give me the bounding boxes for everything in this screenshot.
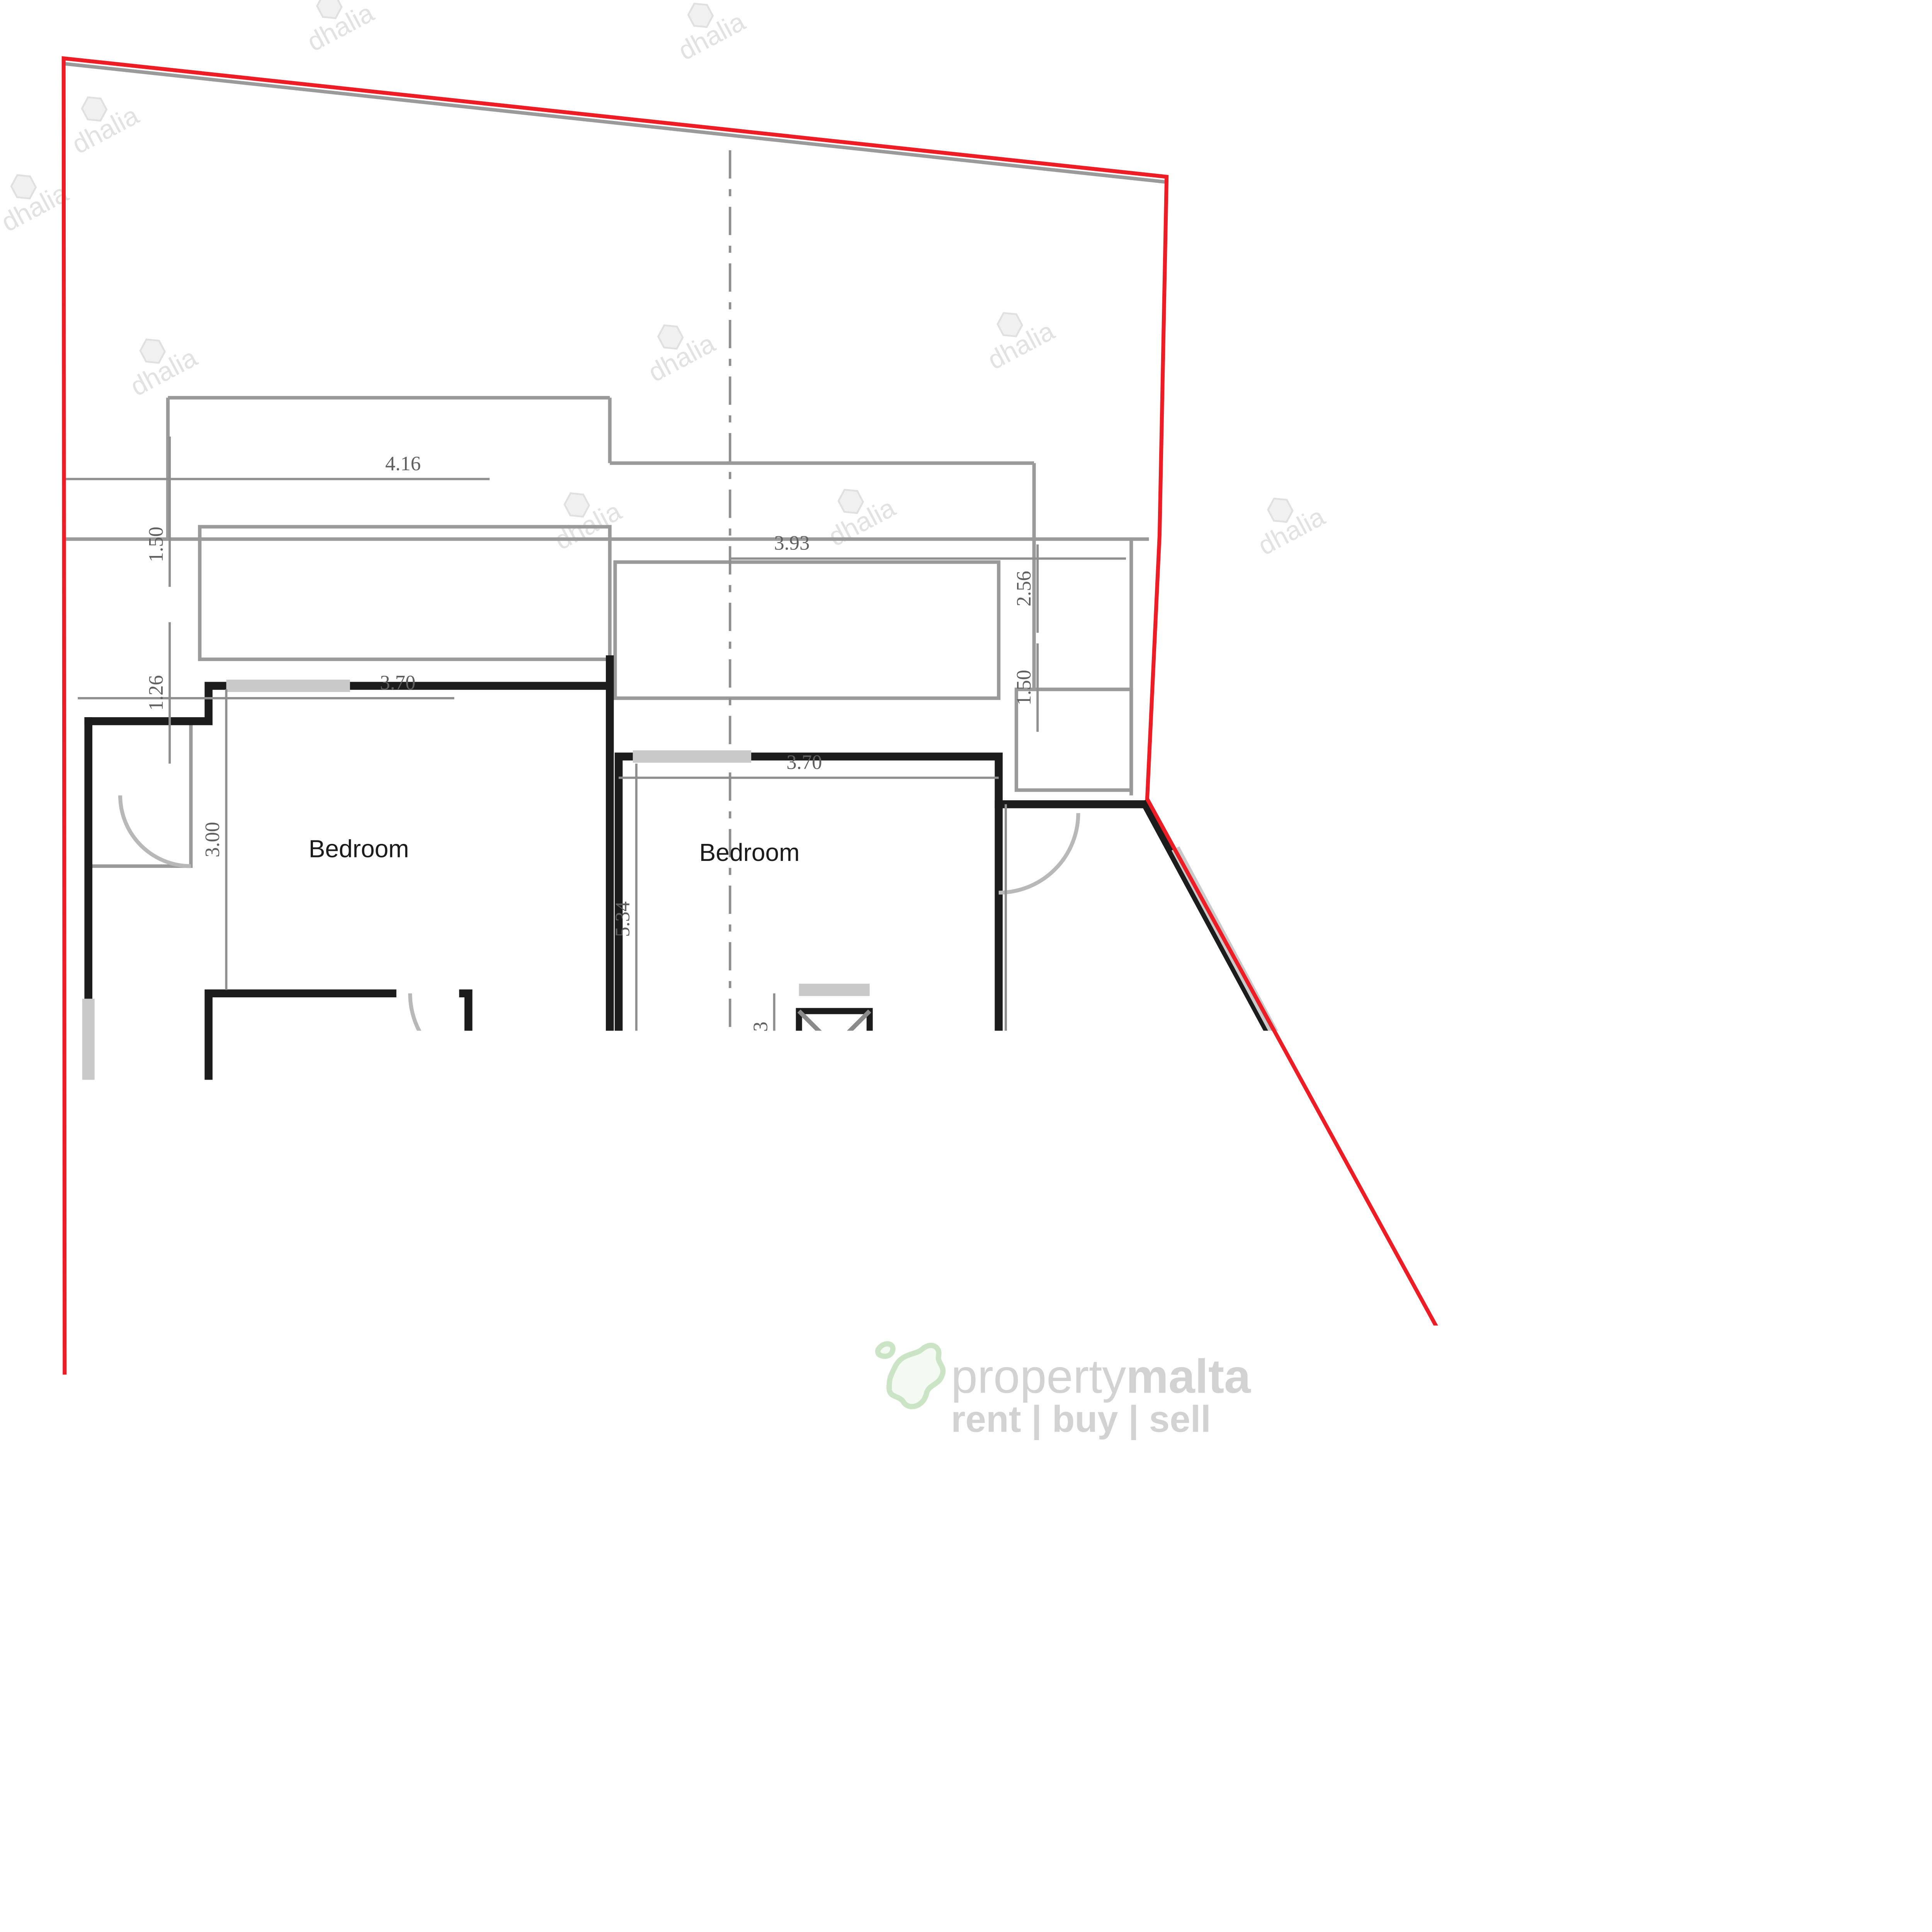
dimension-label: 2.64 bbox=[332, 1543, 368, 1565]
watermark-brand: propertymalta bbox=[951, 1350, 1251, 1403]
dimension-label: 1.80 bbox=[687, 1044, 723, 1067]
dimension-label: 2.56 bbox=[1013, 571, 1035, 606]
dimension-label: 2.25 bbox=[615, 1250, 638, 1285]
dimension-label: 3.93 bbox=[774, 532, 810, 554]
dimension-label: 1.45 bbox=[145, 1476, 180, 1498]
room-label-bedroom: Bedroom bbox=[699, 838, 800, 866]
room-label-dining: Dining bbox=[951, 1772, 1022, 1799]
dimension-label: 4.58 bbox=[1646, 1801, 1672, 1839]
dimension-label: 0.73 bbox=[749, 1022, 772, 1057]
dimension-label: 1.50 bbox=[1384, 1417, 1406, 1453]
dimension-label: 5.34 bbox=[612, 901, 634, 937]
penthouse1-price: €456k bbox=[361, 1676, 425, 1702]
stair-side-partition bbox=[658, 1626, 750, 1932]
penthouse1-title: Penthouse 1 bbox=[333, 1618, 611, 1663]
dimension-label: 4.18 bbox=[884, 1803, 906, 1838]
room-label-bedroom: Bedroom bbox=[1145, 1132, 1245, 1160]
room-label-kitchen: Kitchen bbox=[1346, 1595, 1429, 1623]
room-label-bedroom: Bedroom bbox=[309, 835, 409, 863]
dimension-label: 3.70 bbox=[786, 751, 822, 774]
dimension-label: 1.50 bbox=[145, 527, 167, 562]
dimension-label: 4.12 bbox=[1175, 1515, 1211, 1537]
room-label-ensuite: Ensuite bbox=[758, 1277, 840, 1304]
dimension-label: 5.25 bbox=[981, 1031, 1003, 1066]
dimension-label: 4.16 bbox=[385, 452, 421, 475]
floor-plan-drawing: dhalia dhalia dhalia dhalia dhalia dhali… bbox=[0, 0, 1932, 1932]
dimension-label: 3.70 bbox=[380, 672, 415, 694]
room-label-lift: Lift bbox=[761, 1418, 794, 1446]
room-label-living: Living bbox=[502, 1772, 566, 1799]
dimension-label: 2.33 bbox=[254, 1467, 277, 1503]
gozo-island-icon bbox=[878, 1344, 893, 1356]
dimension-label: 1.50 bbox=[1013, 670, 1035, 705]
floor-plan-page: dhalia dhalia dhalia dhalia dhalia dhali… bbox=[0, 0, 1932, 1932]
penthouse2-title: Penthouse 2 bbox=[978, 1618, 1256, 1663]
paper-background bbox=[0, 0, 1932, 1932]
room-label-dining: Dining bbox=[257, 1876, 327, 1904]
room-label-ensuite: Ensuite bbox=[132, 1418, 215, 1446]
room-label-kitchen: Kitchen bbox=[153, 1701, 236, 1729]
dimension-label: 1.26 bbox=[145, 675, 167, 711]
dimension-label: 3.40 bbox=[656, 1820, 678, 1856]
dimension-label: 3.00 bbox=[201, 822, 224, 857]
room-label-living: Living bbox=[1184, 1855, 1248, 1883]
penthouse2-price: €339k bbox=[1014, 1676, 1078, 1702]
watermark-tagline: rent | buy | sell bbox=[951, 1398, 1211, 1440]
room-label-bathroom: Bathroom bbox=[1251, 1415, 1358, 1442]
room-label-bedroom: Bedroom bbox=[218, 1227, 319, 1255]
room-label-bathroom: Bathroom bbox=[305, 1415, 413, 1442]
dimension-label: 4.04 bbox=[1186, 1285, 1221, 1307]
